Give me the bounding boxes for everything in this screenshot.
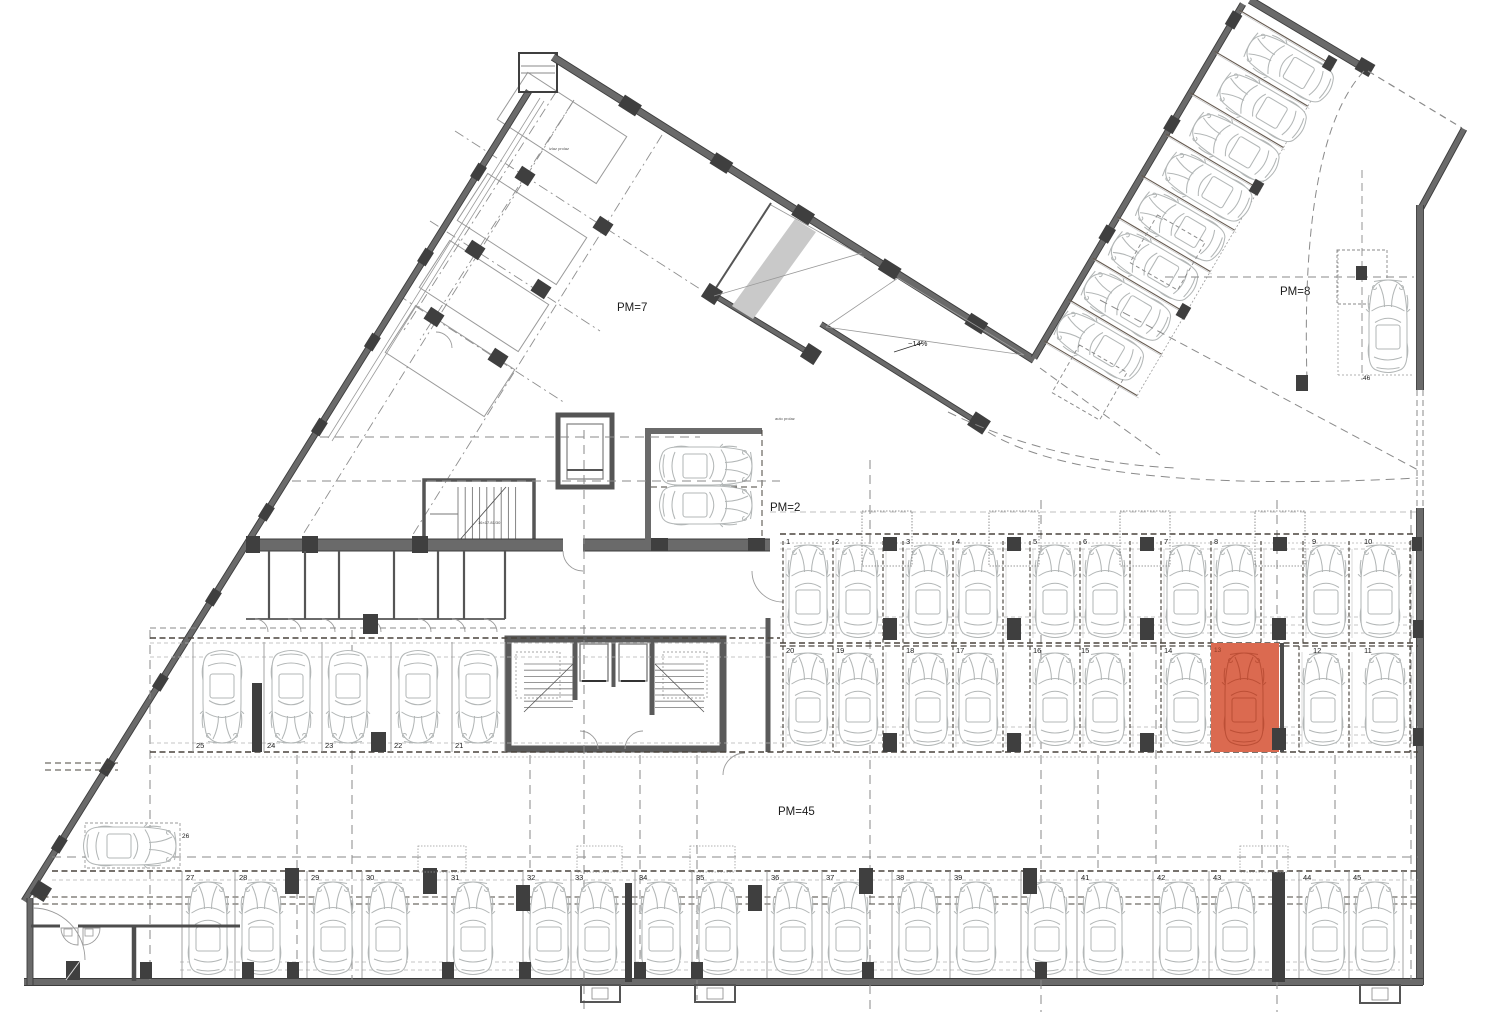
svg-text:29: 29 — [311, 873, 319, 882]
svg-text:38: 38 — [896, 873, 904, 882]
svg-text:PM=45: PM=45 — [778, 806, 815, 818]
svg-text:30: 30 — [366, 873, 374, 882]
svg-text:2: 2 — [835, 537, 839, 546]
svg-text:43: 43 — [1213, 873, 1221, 882]
svg-text:16: 16 — [1033, 646, 1041, 655]
svg-text:15: 15 — [1081, 646, 1089, 655]
svg-text:23: 23 — [325, 741, 333, 750]
svg-text:9: 9 — [1312, 537, 1316, 546]
svg-text:46: 46 — [1363, 375, 1371, 382]
svg-text:auto prolaz: auto prolaz — [775, 416, 795, 421]
svg-text:27: 27 — [186, 873, 194, 882]
svg-text:6: 6 — [1083, 537, 1087, 546]
svg-text:42: 42 — [1157, 873, 1165, 882]
svg-text:33: 33 — [575, 873, 583, 882]
svg-text:PM=7: PM=7 — [617, 302, 647, 314]
svg-text:19: 19 — [836, 646, 844, 655]
svg-text:24: 24 — [267, 741, 275, 750]
svg-text:35: 35 — [696, 873, 704, 882]
svg-text:1: 1 — [786, 537, 790, 546]
svg-text:39: 39 — [954, 873, 962, 882]
svg-text:22: 22 — [394, 741, 402, 750]
svg-text:41: 41 — [1081, 873, 1089, 882]
svg-text:14: 14 — [1164, 646, 1172, 655]
svg-text:izlaz prolaz: izlaz prolaz — [549, 146, 569, 151]
svg-text:20: 20 — [786, 646, 794, 655]
svg-text:13: 13 — [1214, 647, 1222, 654]
svg-text:34: 34 — [639, 873, 647, 882]
svg-text:32: 32 — [527, 873, 535, 882]
svg-text:45: 45 — [1353, 873, 1361, 882]
svg-text:11: 11 — [1364, 646, 1372, 655]
svg-text:37: 37 — [826, 873, 834, 882]
svg-text:31: 31 — [451, 873, 459, 882]
svg-text:25: 25 — [196, 741, 204, 750]
svg-text:5: 5 — [1033, 537, 1037, 546]
svg-text:PM=8: PM=8 — [1280, 286, 1310, 298]
svg-text:3: 3 — [906, 537, 910, 546]
svg-text:7: 7 — [1164, 537, 1168, 546]
svg-text:21: 21 — [455, 741, 463, 750]
svg-text:26: 26 — [182, 833, 190, 840]
svg-text:36: 36 — [771, 873, 779, 882]
svg-text:28: 28 — [239, 873, 247, 882]
svg-text:10: 10 — [1364, 537, 1372, 546]
svg-text:4: 4 — [956, 537, 960, 546]
svg-text:16×17.81/30: 16×17.81/30 — [478, 520, 501, 525]
svg-text:44: 44 — [1303, 873, 1311, 882]
svg-text:12: 12 — [1313, 646, 1321, 655]
svg-text:8: 8 — [1214, 537, 1218, 546]
svg-text:17: 17 — [956, 646, 964, 655]
svg-text:18: 18 — [906, 646, 914, 655]
